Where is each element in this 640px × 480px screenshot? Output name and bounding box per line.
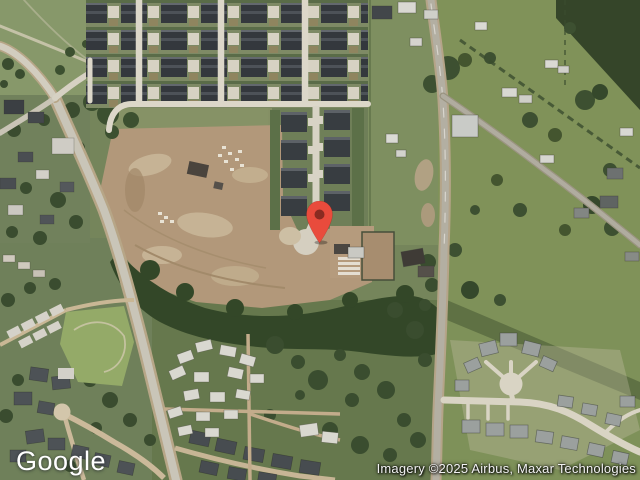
map-pin-icon[interactable] — [306, 201, 333, 245]
map-canvas[interactable]: Google Imagery ©2025 Airbus, Maxar Techn… — [0, 0, 640, 480]
attribution-text: Imagery ©2025 Airbus, Maxar Technologies — [377, 461, 636, 476]
cul-de-sac-east — [500, 373, 523, 396]
map-pin-graphic — [306, 201, 333, 245]
white-building — [452, 115, 478, 137]
cul-de-sac-west — [54, 404, 71, 421]
google-logo[interactable]: Google — [16, 446, 106, 477]
